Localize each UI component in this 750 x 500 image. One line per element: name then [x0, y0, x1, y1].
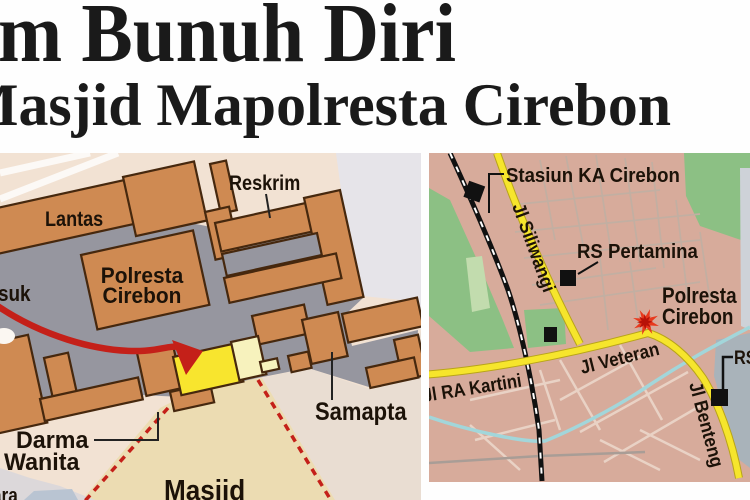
svg-text:suk: suk: [0, 282, 31, 307]
svg-text:RS: RS: [734, 347, 750, 368]
svg-text:Masjid: Masjid: [164, 474, 245, 500]
svg-text:Stasiun KA Cirebon: Stasiun KA Cirebon: [506, 165, 680, 187]
svg-text:RS Pertamina: RS Pertamina: [577, 241, 698, 263]
svg-text:Lantas: Lantas: [45, 208, 103, 232]
svg-text:m Bunuh Diri: m Bunuh Diri: [0, 0, 456, 80]
svg-text:Wanita: Wanita: [4, 450, 80, 476]
svg-text:Reskrim: Reskrim: [229, 172, 300, 196]
svg-text:ara: ara: [0, 484, 18, 500]
svg-text:Cirebon: Cirebon: [103, 284, 182, 309]
svg-text:Samapta: Samapta: [315, 398, 407, 426]
svg-text:Masjid Mapolresta Cirebon: Masjid Mapolresta Cirebon: [0, 72, 671, 138]
svg-text:Cirebon: Cirebon: [662, 305, 733, 330]
